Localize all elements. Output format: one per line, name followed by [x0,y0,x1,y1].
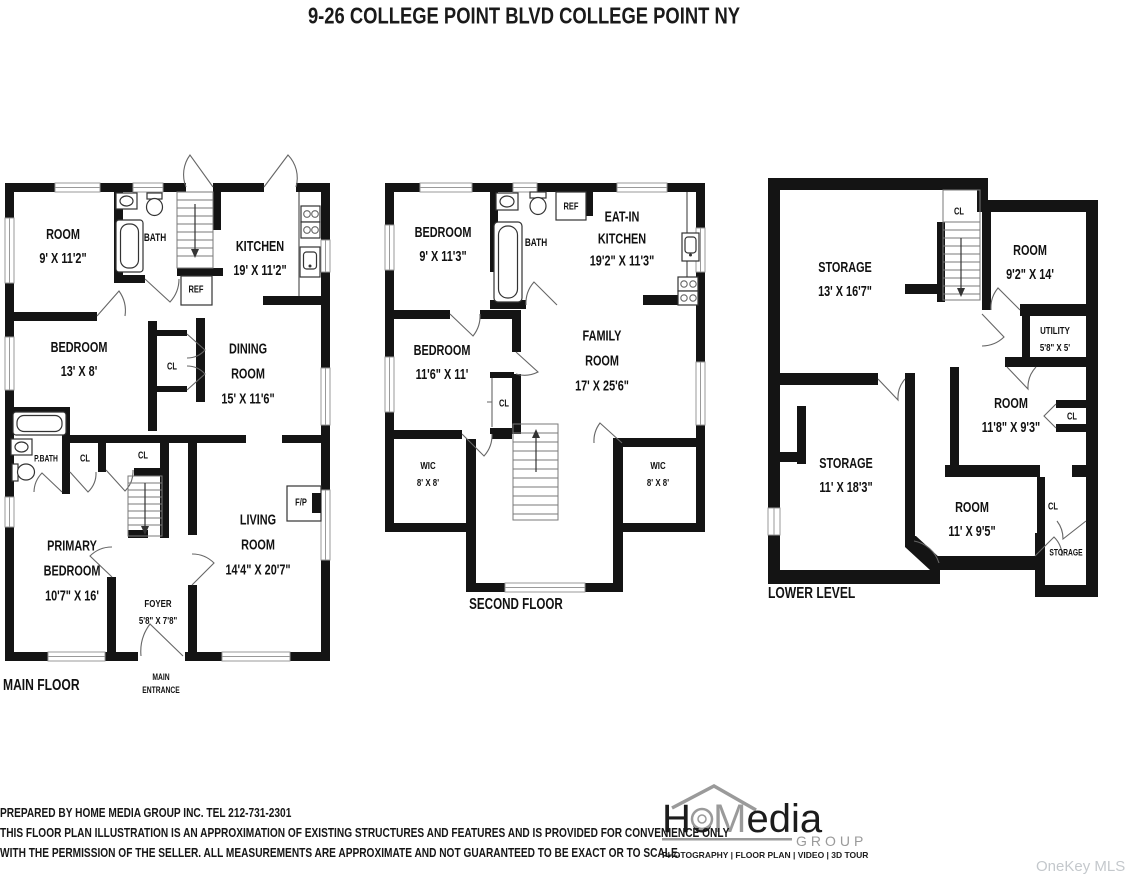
closet-label-main-1: CL [80,452,90,467]
footer-line-3: WITH THE PERMISSION OF THE SELLER. ALL M… [0,845,681,860]
room-name-2: ROOM [575,350,629,375]
room-dims: 8' X 8' [647,475,669,492]
ref-label-second: REF [564,200,579,215]
homedia-logo: HoMedia GROUP PHOTOGRAPHY | FLOOR PLAN |… [662,786,868,860]
room-name: BEDROOM [415,222,472,246]
room-name: BEDROOM [51,337,108,361]
room-label-main-primary: PRIMARY BEDROOM 10'7" X 16' [44,535,101,610]
room-label-second-wic-left: WIC 8' X 8' [417,458,439,492]
room-label-lower-storage2: STORAGE 11' X 18'3" [819,453,873,501]
closet-label-lower-top: CL [954,205,964,220]
page-title: 9-26 COLLEGE POINT BLVD COLLEGE POINT NY [308,3,740,30]
room-name-1: DINING [221,338,274,363]
stove-icon [678,277,698,305]
kitchen-sink-icon [682,233,699,261]
room-dims: 5'8" X 5' [1040,340,1070,357]
room-label-second-bath: BATH [525,234,547,252]
room-dims: 13' X 8' [51,361,108,385]
bathtub-icon [13,412,66,435]
footer-line-2: THIS FLOOR PLAN ILLUSTRATION IS AN APPRO… [0,825,729,840]
room-name-2: KITCHEN [590,229,654,251]
room-name: BEDROOM [414,340,471,364]
logo-group-text: GROUP [796,833,867,849]
room-label-main-room1: ROOM 9' X 11'2" [39,224,86,272]
room-dims: 17' X 25'6" [575,374,629,399]
room-dims: 11'6" X 11' [414,364,471,388]
closet-label-main-2: CL [138,449,148,464]
floor-label-second: SECOND FLOOR [469,592,563,618]
room-name-1: EAT-IN [590,207,654,229]
room-name-1: FAMILY [575,325,629,350]
room-label-main-kitchen: KITCHEN 19' X 11'2" [233,236,286,284]
room-name: WIC [417,458,439,475]
floor-label-main: MAIN FLOOR [3,677,80,695]
second-stairs-icon [513,424,558,520]
room-dims: 9' X 11'2" [39,248,86,272]
room-label-second-kitchen: EAT-IN KITCHEN 19'2" X 11'3" [590,207,654,272]
closet-label-lower-low: CL [1048,500,1058,515]
room-dims: 11'8" X 9'3" [982,417,1040,441]
room-name: STORAGE [819,453,873,477]
stove-icon [301,206,320,238]
lower-windows [768,508,780,535]
counter-line [298,192,300,296]
sink-icon [496,193,518,210]
entrance-line-2: ENTRANCE [142,684,180,697]
room-dims: 19' X 11'2" [233,260,286,284]
room-dims: 9'2" X 14' [1006,264,1054,288]
room-dims: 11' X 9'5" [948,521,995,545]
main-entrance-label: MAIN ENTRANCE [142,671,180,697]
toilet-icon [530,192,546,215]
room-name-1: PRIMARY [44,535,101,560]
closet-label-lower-mid: CL [1067,410,1077,425]
entrance-line-1: MAIN [142,671,180,684]
room-dims: 8' X 8' [417,475,439,492]
logo-tagline: PHOTOGRAPHY | FLOOR PLAN | VIDEO | 3D TO… [662,850,868,860]
closet-label-second: CL [499,397,509,412]
room-dims: 10'7" X 16' [44,584,101,609]
room-label-main-bedroom: BEDROOM 13' X 8' [51,337,108,385]
room-label-main-bath: BATH [144,229,166,247]
room-label-second-bedroom1: BEDROOM 9' X 11'3" [415,222,472,270]
room-name: UTILITY [1040,323,1070,340]
bathtub-icon [116,220,143,272]
room-name: KITCHEN [233,236,286,260]
room-name: ROOM [1006,240,1054,264]
toilet-icon [12,464,35,481]
room-dims: 15' X 11'6" [221,387,274,412]
room-label-lower-room1: ROOM 9'2" X 14' [1006,240,1054,288]
room-label-second-family: FAMILY ROOM 17' X 25'6" [575,325,629,400]
room-label-lower-room3: ROOM 11' X 9'5" [948,497,995,545]
floor-label-lower: LOWER LEVEL [768,585,855,603]
sink-icon [11,439,32,455]
toilet-icon [147,193,163,216]
floorplan-canvas: HoMedia GROUP PHOTOGRAPHY | FLOOR PLAN |… [0,0,1133,876]
room-name-1: LIVING [225,509,290,534]
room-label-lower-room2: ROOM 11'8" X 9'3" [982,393,1040,441]
room-label-main-living: LIVING ROOM 14'4" X 20'7" [225,509,290,584]
room-name: ROOM [39,224,86,248]
fireplace-label: F/P [295,496,307,511]
sink-icon [116,193,137,209]
room-dims: 5'8" X 7'8" [139,613,177,630]
room-label-lower-storage1: STORAGE 13' X 16'7" [818,257,872,305]
main-stairs-icon [128,476,162,536]
room-dims: 9' X 11'3" [415,246,472,270]
ref-label-main: REF [189,283,204,298]
bathtub-icon [494,222,522,302]
room-dims: 14'4" X 20'7" [225,558,290,583]
room-dims: 19'2" X 11'3" [590,251,654,273]
room-label-main-pbath: P.BATH [34,452,58,465]
room-name-2: ROOM [221,363,274,388]
room-name-2: BEDROOM [44,560,101,585]
room-dims: 11' X 18'3" [819,477,873,501]
main-pbath-fixtures [11,412,66,481]
room-label-lower-utility: UTILITY 5'8" X 5' [1040,323,1070,357]
room-name: ROOM [982,393,1040,417]
closet-label-main-hall: CL [167,360,177,375]
footer-line-1: PREPARED BY HOME MEDIA GROUP INC. TEL 21… [0,805,291,820]
room-name-2: ROOM [225,534,290,559]
room-name: WIC [647,458,669,475]
room-label-second-wic-right: WIC 8' X 8' [647,458,669,492]
kitchen-sink-icon [300,247,320,277]
room-label-lower-storage3: STORAGE [1049,546,1082,559]
room-label-second-bedroom2: BEDROOM 11'6" X 11' [414,340,471,388]
back-stairs-icon [177,192,213,268]
room-name: ROOM [948,497,995,521]
onekey-mls-watermark: OneKey MLS [1036,858,1125,875]
room-label-main-foyer: FOYER 5'8" X 7'8" [139,596,177,630]
room-name: FOYER [139,596,177,613]
room-label-main-dining: DINING ROOM 15' X 11'6" [221,338,274,413]
room-name: STORAGE [818,257,872,281]
room-dims: 13' X 16'7" [818,281,872,305]
